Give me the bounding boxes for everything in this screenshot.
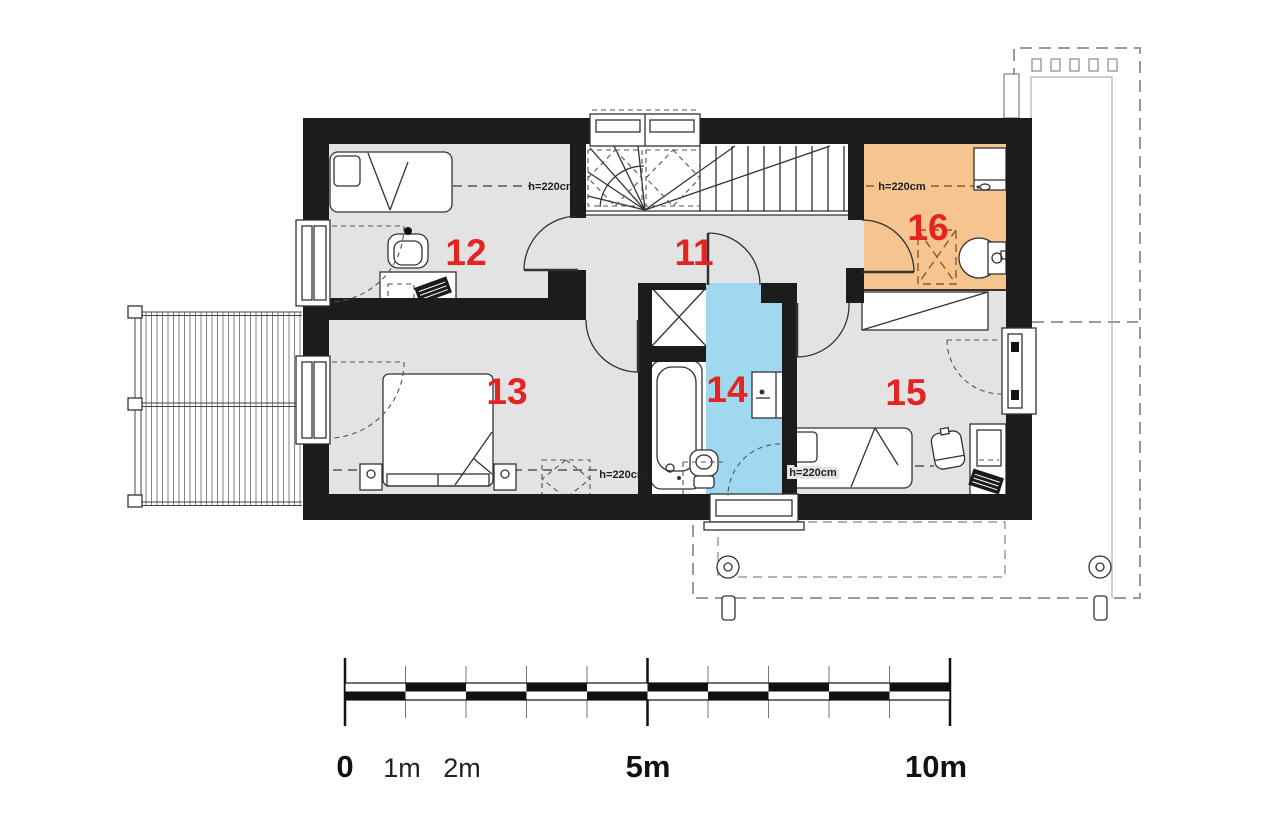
baluster [1089, 59, 1098, 71]
window-room12 [296, 220, 330, 306]
sink-room14 [752, 372, 784, 418]
bed-room15 [790, 428, 912, 488]
balcony-door-room15 [1002, 328, 1036, 414]
bed-room13 [383, 374, 493, 486]
scale-label-0: 0 [336, 749, 353, 784]
toilet-room16 [959, 238, 1006, 278]
height-label-room12: h=220cm [528, 181, 576, 193]
desk-room15 [968, 424, 1006, 498]
floor-stairwell [586, 144, 848, 215]
window-room13 [296, 356, 330, 444]
room-13-label: 13 [486, 371, 527, 412]
chimney [1004, 74, 1019, 118]
room-12-label: 12 [445, 232, 486, 273]
baluster [1051, 59, 1060, 71]
terrace-column-left [717, 556, 739, 620]
room-16-label: 16 [907, 207, 948, 248]
window-room14 [704, 494, 804, 530]
terrace-column-right [1089, 556, 1111, 620]
terrace-outline [717, 522, 1111, 620]
stair-window [590, 110, 700, 146]
room-14-label: 14 [706, 369, 748, 410]
room-11-label: 11 [674, 232, 713, 273]
scale-label-5m: 5m [626, 749, 671, 784]
floor-plan-svg: 12 11 16 13 14 15 h=220cm h=220cm h=220c… [0, 0, 1280, 813]
pergola [128, 306, 302, 507]
scale-label-2m: 2m [443, 753, 481, 783]
baluster [1108, 59, 1117, 71]
nightstand-right-room13 [494, 464, 516, 490]
floor-plan-page: 12 11 16 13 14 15 h=220cm h=220cm h=220c… [0, 0, 1280, 813]
wardrobe-room15 [862, 292, 988, 330]
nightstand-left-room13 [360, 464, 382, 490]
scale-label-1m: 1m [383, 753, 421, 783]
height-label-room16: h=220cm [878, 181, 926, 193]
bed-room12 [330, 152, 452, 212]
scale-bar: 0 1m 2m 5m 10m [336, 658, 967, 784]
height-label-room15: h=220cm [789, 467, 837, 479]
baluster [1032, 59, 1041, 71]
scale-label-10m: 10m [905, 749, 967, 784]
height-label-room13: h=220cm [599, 469, 647, 481]
sink-room16 [974, 148, 1006, 190]
room-15-label: 15 [885, 372, 926, 413]
baluster [1070, 59, 1079, 71]
